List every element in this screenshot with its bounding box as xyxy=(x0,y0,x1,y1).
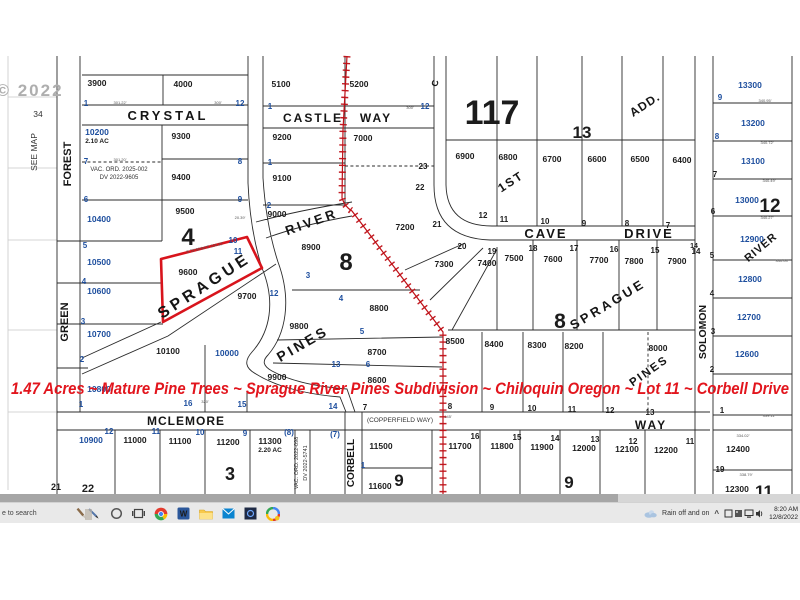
map-label: 3 xyxy=(81,317,86,326)
map-label: 1 xyxy=(720,406,725,415)
map-label: 301.20' xyxy=(114,157,127,162)
map-label: 340.49' xyxy=(763,178,776,183)
paintbrush-pen-icons[interactable] xyxy=(72,505,106,523)
map-label: 13 xyxy=(332,360,341,369)
block-3: 3 xyxy=(225,464,235,484)
map-label: 11 xyxy=(686,437,695,446)
map-label: 8200 xyxy=(565,341,584,351)
map-label: 10 xyxy=(541,217,550,226)
map-label: 15 xyxy=(238,400,247,409)
map-label: 11500 xyxy=(369,441,392,451)
map-label: 8500 xyxy=(446,336,465,346)
map-label: 15 xyxy=(513,433,522,442)
map-label: 12900 xyxy=(740,234,764,244)
map-label: 13 xyxy=(646,408,655,417)
map-label: 340.72' xyxy=(761,140,774,145)
map-label: 2 xyxy=(80,355,85,364)
map-label: 7200 xyxy=(396,222,415,232)
weather-status[interactable]: Rain off and on xyxy=(662,510,709,517)
map-label: 9200 xyxy=(273,132,292,142)
map-label: 9500 xyxy=(176,206,195,216)
map-label: 1 xyxy=(268,102,273,111)
map-label: 13300 xyxy=(738,80,762,90)
map-label: 1 xyxy=(361,461,366,470)
street-forest: FOREST xyxy=(62,141,74,186)
map-label: 8900 xyxy=(302,242,321,252)
parcel-9600: 9600 xyxy=(179,267,198,277)
see-map-number: 34 xyxy=(33,109,43,119)
map-label: 8000 xyxy=(649,343,668,353)
map-label: 12 xyxy=(606,406,615,415)
map-label: 9 xyxy=(238,195,243,204)
lot-11-number: 11 xyxy=(234,247,243,256)
map-label: 9300 xyxy=(172,131,191,141)
google-icon[interactable] xyxy=(266,507,280,521)
block-8: 8 xyxy=(339,249,352,276)
map-label: 11600 xyxy=(368,481,391,491)
map-label: 10500 xyxy=(87,257,111,267)
map-label: 13200 xyxy=(741,118,765,128)
map-label: 12 xyxy=(629,437,638,446)
map-label: 4 xyxy=(339,294,344,303)
clock-date: 12/8/2022 xyxy=(769,514,798,522)
street-mclemore: MCLEMORE xyxy=(147,414,225,428)
map-label: 6 xyxy=(366,360,371,369)
street-1st: 1ST xyxy=(495,168,526,195)
map-label: 12800 xyxy=(738,274,762,284)
windows-taskbar: e to search W xyxy=(0,502,800,524)
street-river: RIVER xyxy=(283,205,340,238)
block-11: 11 xyxy=(755,482,773,494)
map-label: 13000 xyxy=(735,195,759,205)
word-icon[interactable]: W xyxy=(177,507,190,520)
map-label: 11800 xyxy=(490,441,513,451)
system-tray-icons[interactable] xyxy=(724,508,764,520)
map-label: 14 xyxy=(690,243,698,250)
cortana-icon[interactable] xyxy=(110,507,123,520)
map-label: 8 xyxy=(238,157,243,166)
map-label: 9800 xyxy=(290,321,309,331)
map-label: 2 xyxy=(267,201,272,210)
photos-icon[interactable] xyxy=(244,507,257,520)
map-label: 6900 xyxy=(456,151,475,161)
map-label: 334.02' xyxy=(737,433,750,438)
map-label: 9 xyxy=(243,429,248,438)
tray-expand-chevron[interactable]: ^ xyxy=(714,509,719,518)
map-label: 145' xyxy=(444,414,452,419)
block-12: 12 xyxy=(759,196,780,217)
map-label: 4 xyxy=(710,289,715,298)
map-label: 16 xyxy=(471,432,480,441)
map-label: 339.11' xyxy=(763,413,776,418)
mail-icon[interactable] xyxy=(222,507,235,520)
horizontal-scrollbar[interactable] xyxy=(0,494,800,502)
map-label: 12200 xyxy=(654,445,678,455)
map-label: 13 xyxy=(591,435,600,444)
map-label: 10000 xyxy=(215,348,239,358)
map-label: 9400 xyxy=(172,172,191,182)
map-label: 12 xyxy=(479,211,488,220)
copyright-watermark: © 2022 xyxy=(0,81,64,100)
task-view-icon[interactable] xyxy=(132,507,145,520)
map-label: 1 xyxy=(84,99,89,108)
map-label: 338.79' xyxy=(740,472,753,477)
map-label: 301.22' xyxy=(114,100,127,105)
map-label: 12000 xyxy=(572,443,596,453)
listing-banner: 1.47 Acres ~ Mature Pine Trees ~ Sprague… xyxy=(11,380,789,398)
map-label: 5 xyxy=(360,327,365,336)
map-label: 14 xyxy=(329,402,338,411)
map-label: VAC. ORD. 2025-002 xyxy=(90,167,148,173)
map-label: 7600 xyxy=(544,254,563,264)
map-label: 12 xyxy=(421,102,430,111)
map-label: 6800 xyxy=(499,152,518,162)
map-label: 19 xyxy=(488,247,497,256)
street-cave: CAVE xyxy=(524,226,567,241)
chrome-icon[interactable] xyxy=(154,507,168,521)
map-label: (8) xyxy=(284,428,294,437)
map-label: 9 xyxy=(582,219,587,228)
map-label: (7) xyxy=(330,430,340,439)
street-solomon: SOLOMON xyxy=(697,305,709,359)
map-label: 10900 xyxy=(79,435,103,445)
map-label: 320' xyxy=(201,399,209,404)
map-label: 11300 xyxy=(258,436,281,446)
map-label: 7 xyxy=(84,157,89,166)
map-label: 10 xyxy=(229,236,238,245)
map-label: 3 xyxy=(711,327,716,336)
map-label: 8 xyxy=(448,402,453,411)
map-label: 8300 xyxy=(528,340,547,350)
map-label: 2.10 AC xyxy=(85,138,109,145)
section-21: 21 xyxy=(51,482,61,492)
map-label: 5100 xyxy=(272,79,291,89)
map-label: 18 xyxy=(529,244,538,253)
map-label: 11100 xyxy=(169,436,192,446)
weather-cloud-icon[interactable] xyxy=(644,509,657,518)
map-label: 9100 xyxy=(273,173,292,183)
street-green: GREEN xyxy=(59,302,71,341)
map-label: 1 xyxy=(268,158,273,167)
map-label: 20.39' xyxy=(235,215,246,220)
map-label: 7 xyxy=(713,170,718,179)
map-label: 8800 xyxy=(370,303,389,313)
map-label: 7 xyxy=(363,403,368,412)
map-label: 22 xyxy=(416,183,425,192)
map-label: 11200 xyxy=(216,437,239,447)
map-label: 9700 xyxy=(238,291,257,301)
block-8b: 8 xyxy=(554,310,566,333)
map-label: 10100 xyxy=(156,346,180,356)
clock-time: 8:20 AM xyxy=(769,506,798,514)
map-label: 12 xyxy=(236,99,245,108)
map-label: 7500 xyxy=(505,253,524,263)
map-label: 6500 xyxy=(631,154,650,164)
street-corbell: CORBELL xyxy=(346,439,357,487)
map-label: 7400 xyxy=(478,258,497,268)
map-label: 13100 xyxy=(741,156,765,166)
addition-label: ADD. xyxy=(627,90,663,120)
map-label: 11000 xyxy=(123,435,146,445)
map-label: 3900 xyxy=(88,78,107,88)
map-label: 17 xyxy=(570,244,579,253)
map-label: 9 xyxy=(490,403,495,412)
map-label: 11900 xyxy=(530,442,553,452)
taskbar-search-input[interactable]: e to search xyxy=(2,510,72,517)
map-label: 8400 xyxy=(485,339,504,349)
map-label: 5 xyxy=(83,241,88,250)
map-label: 12400 xyxy=(726,444,750,454)
street-partial: C xyxy=(429,78,440,87)
map-label: 12600 xyxy=(735,349,759,359)
map-label: 4 xyxy=(82,277,87,286)
empty-desktop-area xyxy=(0,523,800,600)
street-castle: CASTLE xyxy=(283,111,343,125)
map-label: 7900 xyxy=(668,256,687,266)
map-label: 6400 xyxy=(673,155,692,165)
map-label: 16 xyxy=(610,245,619,254)
map-label: 11 xyxy=(568,405,577,414)
map-label: 11 xyxy=(500,215,509,224)
map-label: DV 2022-5741 xyxy=(303,445,309,480)
map-label: 10700 xyxy=(87,329,111,339)
street-way: WAY xyxy=(635,418,667,432)
section-22: 22 xyxy=(82,483,94,494)
block-9b: 9 xyxy=(564,473,573,492)
map-label: 21 xyxy=(433,220,442,229)
map-label: 7300 xyxy=(435,259,454,269)
map-label: 7700 xyxy=(590,255,609,265)
map-label: 16 xyxy=(184,399,193,408)
scrollbar-thumb[interactable] xyxy=(0,494,618,502)
map-label: 10200 xyxy=(85,127,109,137)
file-explorer-icon[interactable] xyxy=(199,508,213,520)
map-label: 6 xyxy=(711,207,716,216)
map-label: 11700 xyxy=(448,441,471,451)
map-label: 7 xyxy=(666,221,671,230)
map-label: 5 xyxy=(710,251,715,260)
map-index-grid xyxy=(8,56,57,490)
map-label: 3 xyxy=(306,271,311,280)
map-label: 6600 xyxy=(588,154,607,164)
map-label: 14 xyxy=(551,434,560,443)
map-label: 19 xyxy=(716,465,725,474)
map-label: VAC. ORD. 2022-098 xyxy=(294,437,300,489)
map-label: 12700 xyxy=(737,312,761,322)
section-117: 117 xyxy=(465,94,520,132)
map-label: 300' xyxy=(214,100,222,105)
street-copperfield-way: (COPPERFIELD WAY) xyxy=(367,417,433,424)
street-crystal: CRYSTAL xyxy=(128,108,209,123)
map-label: 11 xyxy=(152,427,161,436)
block-13: 13 xyxy=(573,123,592,142)
block-9: 9 xyxy=(394,471,403,490)
map-label: 12300 xyxy=(725,484,749,494)
street-castle-way: WAY xyxy=(360,111,392,125)
map-label: 5200 xyxy=(350,79,369,89)
map-label: 20 xyxy=(458,242,467,251)
map-label: 340.04' xyxy=(776,258,789,263)
map-label: 10600 xyxy=(87,286,111,296)
map-label: 4000 xyxy=(174,79,193,89)
plat-map: © 2022 CRYSTALCASTLEWAYCAVEDRIVEMCLEMORE… xyxy=(0,0,800,494)
map-label: 2.20 AC xyxy=(258,447,282,454)
map-label: DV 2022-9605 xyxy=(100,175,139,181)
map-label: 9 xyxy=(718,93,723,102)
taskbar-clock[interactable]: 8:20 AM 12/8/2022 xyxy=(769,506,798,521)
map-label: 340.27' xyxy=(761,215,774,220)
map-label: 10 xyxy=(196,428,205,437)
map-label: 7000 xyxy=(354,133,373,143)
map-label: 6 xyxy=(84,195,89,204)
map-label: 8 xyxy=(625,219,630,228)
see-map-note: SEE MAP xyxy=(29,133,39,171)
map-label: 8700 xyxy=(368,347,387,357)
map-label: 9000 xyxy=(268,209,287,219)
map-label: 12 xyxy=(105,427,114,436)
map-label: 300' xyxy=(406,105,414,110)
map-label: 23 xyxy=(419,162,428,171)
boundary-hatch-line xyxy=(342,56,443,494)
map-label: 10 xyxy=(528,404,537,413)
map-label: 12 xyxy=(270,289,279,298)
map-label: 7800 xyxy=(625,256,644,266)
street-sprague-east: SPRAGUE xyxy=(567,276,648,333)
map-label: 15 xyxy=(651,246,660,255)
map-label: 1 xyxy=(79,400,84,409)
svg-text:W: W xyxy=(180,510,188,519)
map-label: 340.95' xyxy=(759,98,772,103)
desktop-screen: © 2022 CRYSTALCASTLEWAYCAVEDRIVEMCLEMORE… xyxy=(0,0,800,600)
map-label: 10400 xyxy=(87,214,111,224)
map-label: 6700 xyxy=(543,154,562,164)
map-label: 2 xyxy=(710,365,715,374)
map-label: 8 xyxy=(715,132,720,141)
